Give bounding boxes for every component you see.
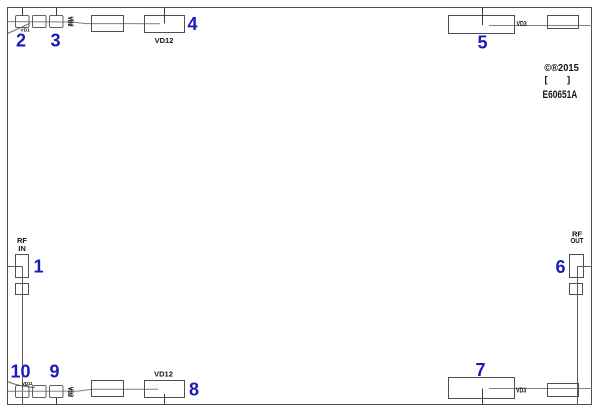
svg-text:5: 5 [478,33,488,53]
svg-text:IN: IN [18,244,26,253]
svg-text:E60651A: E60651A [543,89,578,101]
svg-text:©®2015: ©®2015 [544,63,579,74]
svg-text:VD11: VD11 [22,381,33,386]
svg-text:10: 10 [11,362,31,382]
svg-text:VD3: VD3 [516,387,526,394]
svg-text:OUT: OUT [571,236,584,245]
svg-text:7: 7 [476,360,486,380]
svg-text:VD12: VD12 [154,370,173,379]
svg-text:VD12: VD12 [155,36,174,45]
svg-text:2: 2 [16,31,26,51]
svg-text:4: 4 [188,14,198,34]
svg-text:VD2: VD2 [66,387,72,397]
svg-text:VD2: VD2 [66,16,72,26]
svg-text:1: 1 [34,257,44,277]
svg-text:8: 8 [189,379,199,399]
svg-text:VD3: VD3 [517,21,527,28]
svg-text:6: 6 [556,257,566,277]
svg-text:]: ] [567,75,570,86]
svg-text:3: 3 [51,31,61,51]
svg-text:9: 9 [50,362,60,382]
